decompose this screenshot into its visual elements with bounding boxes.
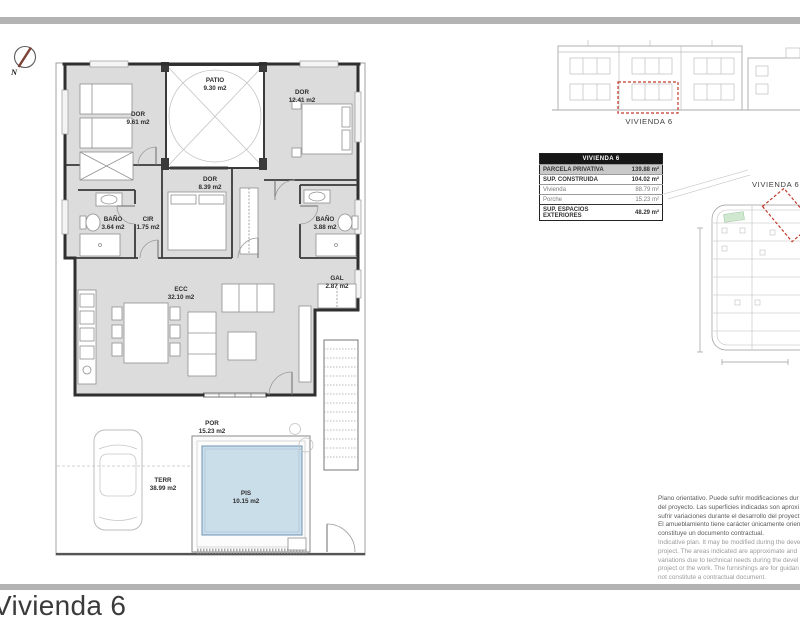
site-unit-highlight	[762, 188, 800, 241]
room-area-patio: 9.30 m2	[203, 85, 227, 92]
room-area-gal: 2.87 m2	[325, 283, 349, 290]
room-label-gal: GAL	[330, 275, 343, 282]
room-area-bano-left: 3.64 m2	[101, 224, 125, 231]
table-row: PARCELA PRIVATIVA 139.88 m²	[540, 165, 663, 175]
page-title: Vivienda 6	[0, 590, 126, 622]
row-label: Porche	[540, 195, 623, 205]
row-value: 104.02 m²	[622, 175, 663, 185]
table-header: VIVIENDA 6	[540, 154, 663, 165]
room-area-bano-right: 3.88 m2	[313, 224, 337, 231]
row-value: 88.79 m²	[622, 185, 663, 195]
disclaimer-line-en: not constitute a contractual document.	[658, 574, 800, 583]
room-label-patio: PATIO	[206, 77, 224, 84]
disclaimer-line-es: Plano orientativo. Puede sufrir modifica…	[658, 495, 800, 504]
room-area-dor-left: 9.61 m2	[126, 119, 150, 126]
disclaimer-line-en: Indicative plan. It may be modified duri…	[658, 539, 800, 548]
room-label-pis: PIS	[241, 490, 251, 497]
table-row: Porche 15.23 m²	[540, 195, 663, 205]
room-label-bano-right: BAÑO	[316, 214, 335, 223]
row-label: PARCELA PRIVATIVA	[540, 165, 623, 175]
disclaimer-line-es: del proyecto. Las superficies indicadas …	[658, 504, 800, 513]
plan-sheet: N	[0, 0, 800, 640]
pool	[202, 446, 302, 535]
surface-summary-table: VIVIENDA 6 PARCELA PRIVATIVA 139.88 m² S…	[539, 153, 663, 221]
elevation-unit-highlight	[618, 82, 678, 113]
table-row: SUP. ESPACIOS EXTERIORES 48.29 m²	[540, 205, 663, 221]
disclaimer-line-en: project or the work. The furnishings are…	[658, 565, 800, 574]
room-area-ecc: 32.10 m2	[168, 294, 195, 301]
site-plan-caption: VIVIENDA 6	[752, 180, 799, 189]
table-row: SUP. CONSTRUIDA 104.02 m²	[540, 175, 663, 185]
room-label-dor-right: DOR	[295, 89, 309, 96]
disclaimer-line-es: El amueblamiento tiene carácter únicamen…	[658, 521, 800, 530]
row-value: 48.29 m²	[622, 205, 663, 221]
room-area-dor-mid: 8.39 m2	[198, 184, 222, 191]
table-row: Vivienda 88.79 m²	[540, 185, 663, 195]
disclaimer-text: Plano orientativo. Puede sufrir modifica…	[658, 495, 800, 583]
room-area-dor-right: 12.41 m2	[289, 97, 316, 104]
dining-set	[112, 303, 180, 363]
disclaimer-line-es: sufrir variaciones durante el desarrollo…	[658, 513, 800, 522]
elevation-drawing: VIVIENDA 6	[552, 40, 800, 126]
floor-plan: DOR 9.61 m2 PATIO 9.30 m2 DOR 12.41 m2 D…	[56, 61, 365, 555]
room-area-cir: 1.75 m2	[136, 224, 160, 231]
row-value: 15.23 m²	[622, 195, 663, 205]
stairs	[324, 340, 358, 552]
kitchen-counter	[78, 290, 96, 384]
room-label-terr: TERR	[154, 477, 172, 484]
room-label-bano-left: BAÑO	[104, 214, 123, 223]
room-area-pis: 10.15 m2	[233, 498, 260, 505]
bedroom-left-furniture	[80, 84, 133, 180]
room-label-ecc: ECC	[174, 286, 188, 293]
room-label-dor-left: DOR	[131, 111, 145, 118]
room-label-por: POR	[205, 420, 219, 427]
disclaimer-line-en: project. The areas indicated are approxi…	[658, 548, 800, 557]
disclaimer-line-en: variations due to technical needs during…	[658, 557, 800, 566]
room-label-dor-mid: DOR	[203, 176, 217, 183]
compass-north-label: N	[10, 67, 18, 77]
row-label: Vivienda	[540, 185, 623, 195]
room-area-por: 15.23 m2	[199, 428, 226, 435]
room-label-cir: CIR	[143, 216, 154, 223]
row-value: 139.88 m²	[622, 165, 663, 175]
room-area-terr: 38.99 m2	[150, 485, 177, 492]
bedroom-mid-furniture	[168, 188, 258, 254]
row-label: SUP. CONSTRUIDA	[540, 175, 623, 185]
site-plan-drawing: VIVIENDA 6	[664, 170, 800, 365]
disclaimer-line-es: constituye un documento contractual.	[658, 530, 800, 539]
elevation-caption: VIVIENDA 6	[625, 117, 672, 126]
row-label: SUP. ESPACIOS EXTERIORES	[540, 205, 623, 221]
compass-icon: N	[10, 47, 36, 78]
car-outline	[94, 430, 142, 530]
